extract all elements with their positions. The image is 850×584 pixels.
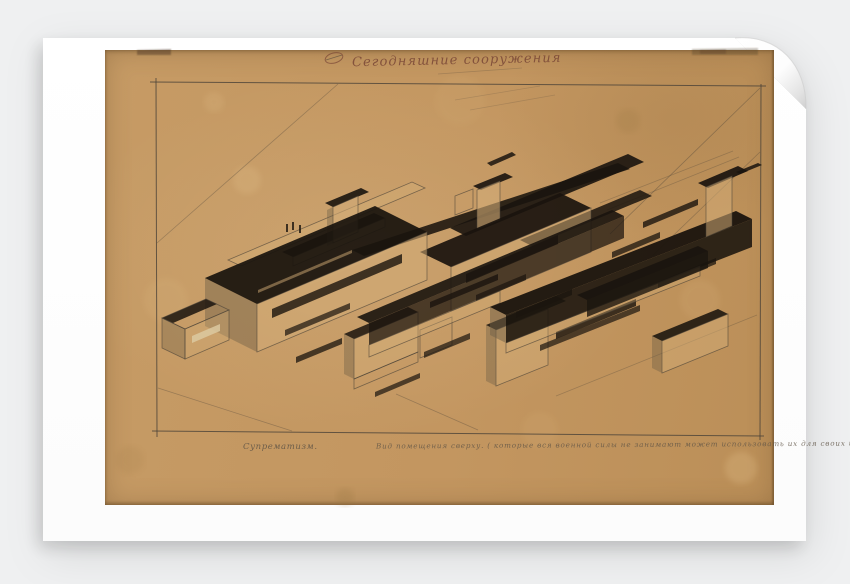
caption-suprematism: Супрематизм. bbox=[243, 442, 318, 452]
art-print-mockup: Сегодняшние сооружения Супрематизм. Вид … bbox=[0, 0, 850, 584]
drawing-svg bbox=[0, 0, 850, 584]
